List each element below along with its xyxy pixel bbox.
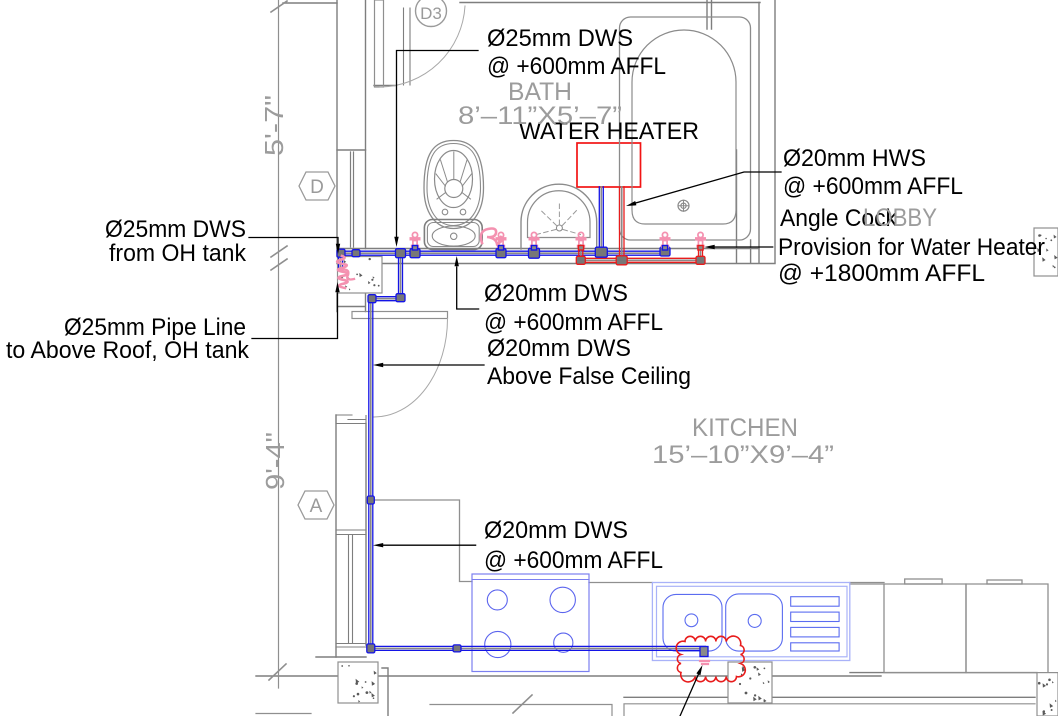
svg-text:@ +1800mm AFFL: @ +1800mm AFFL <box>778 260 985 287</box>
svg-text:Ø20mm DWS: Ø20mm DWS <box>487 335 631 362</box>
svg-text:@ +600mm AFFL: @ +600mm AFFL <box>487 53 666 80</box>
svg-text:Ø25mm DWS: Ø25mm DWS <box>487 25 633 52</box>
svg-text:Ø20mm HWS: Ø20mm HWS <box>783 145 926 172</box>
svg-text:A: A <box>310 496 323 517</box>
svg-text:@ +600mm AFFL: @ +600mm AFFL <box>484 547 663 574</box>
svg-text:Ø20mm DWS: Ø20mm DWS <box>484 280 628 307</box>
svg-text:to Above Roof, OH tank: to Above Roof, OH tank <box>6 337 250 364</box>
svg-text:from OH tank: from OH tank <box>109 240 247 267</box>
svg-text:@ +600mm AFFL: @ +600mm AFFL <box>783 173 963 200</box>
svg-text:D: D <box>310 177 324 198</box>
svg-text:9'-4": 9'-4" <box>260 432 290 490</box>
svg-text:Ø20mm DWS: Ø20mm DWS <box>484 517 628 544</box>
svg-text:D3: D3 <box>420 4 442 23</box>
svg-text:Above False Ceiling: Above False Ceiling <box>487 363 691 390</box>
svg-text:Provision for Water Heater: Provision for Water Heater <box>778 234 1045 261</box>
svg-text:@ +600mm AFFL: @ +600mm AFFL <box>484 309 663 336</box>
svg-text:15’–10”X9’–4”: 15’–10”X9’–4” <box>652 441 834 469</box>
svg-text:8’–11”X5’–7”: 8’–11”X5’–7” <box>458 102 622 130</box>
svg-text:LOBBY: LOBBY <box>863 204 937 232</box>
svg-text:KITCHEN: KITCHEN <box>692 414 798 442</box>
svg-text:Ø25mm DWS: Ø25mm DWS <box>105 216 246 243</box>
svg-text:5'-7": 5'-7" <box>259 95 289 156</box>
